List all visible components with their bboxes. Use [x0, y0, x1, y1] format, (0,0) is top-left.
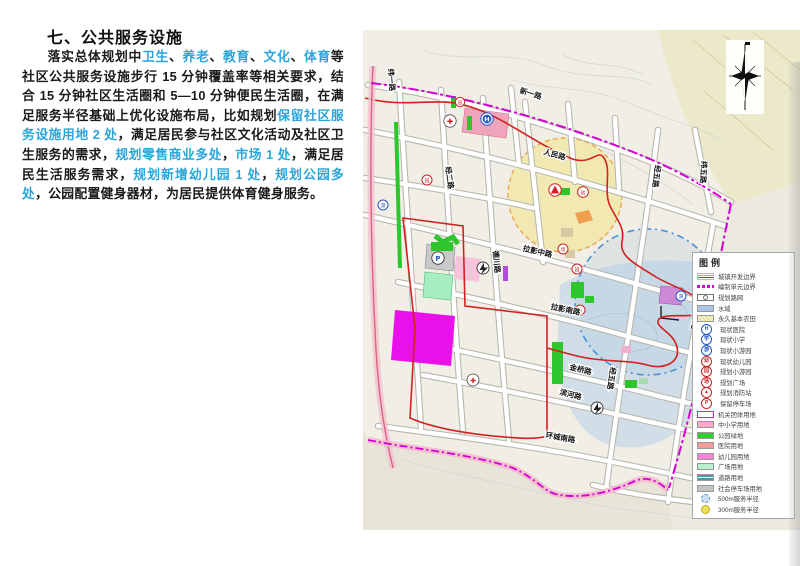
road-swatch — [697, 294, 714, 301]
plaza-icon: 场 — [701, 377, 712, 388]
hospital-land-swatch — [697, 442, 714, 449]
road-label: 德川路 — [491, 250, 503, 274]
garden-icon: 园 — [455, 97, 464, 106]
legend-item: 幼现状幼儿园 — [697, 356, 791, 367]
legend-item: 学现状小学 — [697, 335, 791, 346]
kindergarten-land-swatch — [697, 453, 714, 460]
legend-item: 水域 — [697, 303, 791, 314]
text-segment: ，公园配置健身器材，为居民提供体育健身服务。 — [35, 186, 323, 201]
svg-text:园: 园 — [575, 267, 580, 273]
clinic-cross-icon: ✚ — [444, 115, 456, 127]
svg-text:幼: 幼 — [580, 189, 585, 196]
highlight-text: 养老 — [182, 49, 209, 64]
legend-item: 300m服务半径 — [697, 504, 791, 515]
svg-text:游: 游 — [381, 202, 386, 209]
power-icon — [591, 402, 603, 415]
legend-item: 场规划广场 — [697, 377, 791, 388]
legend-panel: 图例 城镇开发边界 编制单元边界 规划路网 水域 永久基本农田 H现状医院 学现… — [692, 252, 795, 519]
legend-item: 机关团体用地 — [697, 409, 791, 420]
legend-item: P保留停车场 — [697, 398, 791, 409]
hospital-icon: H — [701, 324, 712, 335]
svg-text:✚: ✚ — [470, 377, 476, 385]
garden-icon: 园 — [422, 175, 432, 185]
kindergarten-icon: 幼 — [578, 187, 589, 198]
document-page: { "title": "七、公共服务设施", "paragraph": { "s… — [0, 0, 800, 566]
kindergarten-icon: 幼 — [701, 356, 712, 367]
svg-text:场: 场 — [561, 246, 566, 253]
text-segment: ， — [222, 147, 235, 162]
highlight-text: 教育 — [223, 49, 250, 64]
legend-item: ▲规划消防站 — [697, 388, 791, 399]
highlight-text: 规划新增幼儿园 1 处 — [133, 167, 261, 182]
svg-text:园: 园 — [425, 178, 430, 184]
org-block — [391, 310, 455, 366]
svg-text:H: H — [484, 116, 489, 124]
highlight-text: 卫生 — [142, 49, 169, 64]
svg-text:园: 园 — [458, 100, 463, 106]
parking-icon: P — [701, 398, 712, 409]
pink-block — [621, 346, 631, 353]
dev-boundary-swatch — [697, 273, 714, 280]
school-land-swatch — [697, 421, 714, 428]
kindergarten-block — [503, 266, 508, 281]
svg-text:游: 游 — [679, 293, 684, 300]
page-title: 七、公共服务设施 — [47, 24, 183, 48]
legend-item: 广场用地 — [697, 462, 791, 473]
org-land-swatch — [697, 411, 714, 418]
text-segment: 落实总体规划中 — [48, 49, 142, 64]
square-block — [423, 272, 453, 300]
unit-boundary-swatch — [697, 285, 714, 288]
legend-item: 编制单元边界 — [697, 282, 791, 293]
radius-300-swatch — [701, 505, 710, 514]
highlight-text: 规划零售商业多处 — [115, 147, 222, 162]
park-icon: 游 — [676, 291, 686, 301]
text-segment: 、 — [290, 49, 304, 64]
legend-item: H现状医院 — [697, 324, 791, 335]
water-swatch — [697, 305, 714, 312]
legend-item: 幼儿园用地 — [697, 451, 791, 462]
legend-item: 道路用地 — [697, 472, 791, 483]
legend-item: 中小学用地 — [697, 419, 791, 430]
hospital-icon: H — [481, 113, 493, 125]
svg-text:✚: ✚ — [447, 117, 453, 126]
legend-item: 医院用地 — [697, 441, 791, 452]
road-land-swatch — [697, 474, 714, 481]
highlight-text: 市场 1 处 — [235, 147, 291, 162]
legend-item: 社会停车场用地 — [697, 483, 791, 494]
text-segment: ， — [261, 167, 275, 182]
highlight-text: 文化 — [263, 49, 290, 64]
park-icon: 游 — [701, 345, 712, 356]
highlight-text: 体育 — [304, 49, 331, 64]
legend-item: 城镇开发边界 — [697, 271, 791, 282]
legend-item: 500m服务半径 — [697, 493, 791, 504]
school-icon: 学 — [701, 334, 712, 345]
power-icon — [477, 262, 489, 275]
green-block — [639, 378, 648, 384]
fire-station-icon — [549, 184, 561, 196]
road-label: 纬五路 — [698, 161, 710, 185]
fire-station-icon: ▲ — [701, 387, 712, 398]
legend-item: 规划路网 — [697, 292, 791, 303]
plaza-icon: 场 — [558, 244, 568, 254]
legend-title: 图例 — [699, 256, 791, 269]
text-segment: 、 — [250, 49, 264, 64]
text-segment: 、 — [169, 49, 183, 64]
village-block — [561, 228, 573, 237]
text-segment: 、 — [209, 49, 223, 64]
radius-500-swatch — [701, 494, 710, 503]
farmland-swatch — [697, 315, 714, 322]
legend-item: 园规划小游园 — [697, 366, 791, 377]
body-paragraph: 落实总体规划中卫生、养老、教育、文化、体育等社区公共服务设施步行 15 分钟覆盖… — [22, 47, 344, 204]
legend-item: 公园绿地 — [697, 430, 791, 441]
parking-icon: P — [432, 252, 444, 264]
legend-item: 永久基本农田 — [697, 313, 791, 324]
svg-text:P: P — [435, 255, 440, 263]
road-label: 纬一路 — [386, 68, 398, 92]
garden-icon: 园 — [572, 264, 582, 274]
scan-page-edge — [789, 62, 800, 566]
park-icon: 游 — [378, 200, 388, 210]
parking-land-swatch — [697, 485, 714, 492]
garden-icon: 园 — [701, 366, 712, 377]
green-land-swatch — [697, 432, 714, 439]
north-compass-icon — [726, 40, 764, 114]
legend-item: 游现状小游园 — [697, 345, 791, 356]
plaza-land-swatch — [697, 463, 714, 470]
clinic-cross-icon: ✚ — [467, 374, 479, 386]
